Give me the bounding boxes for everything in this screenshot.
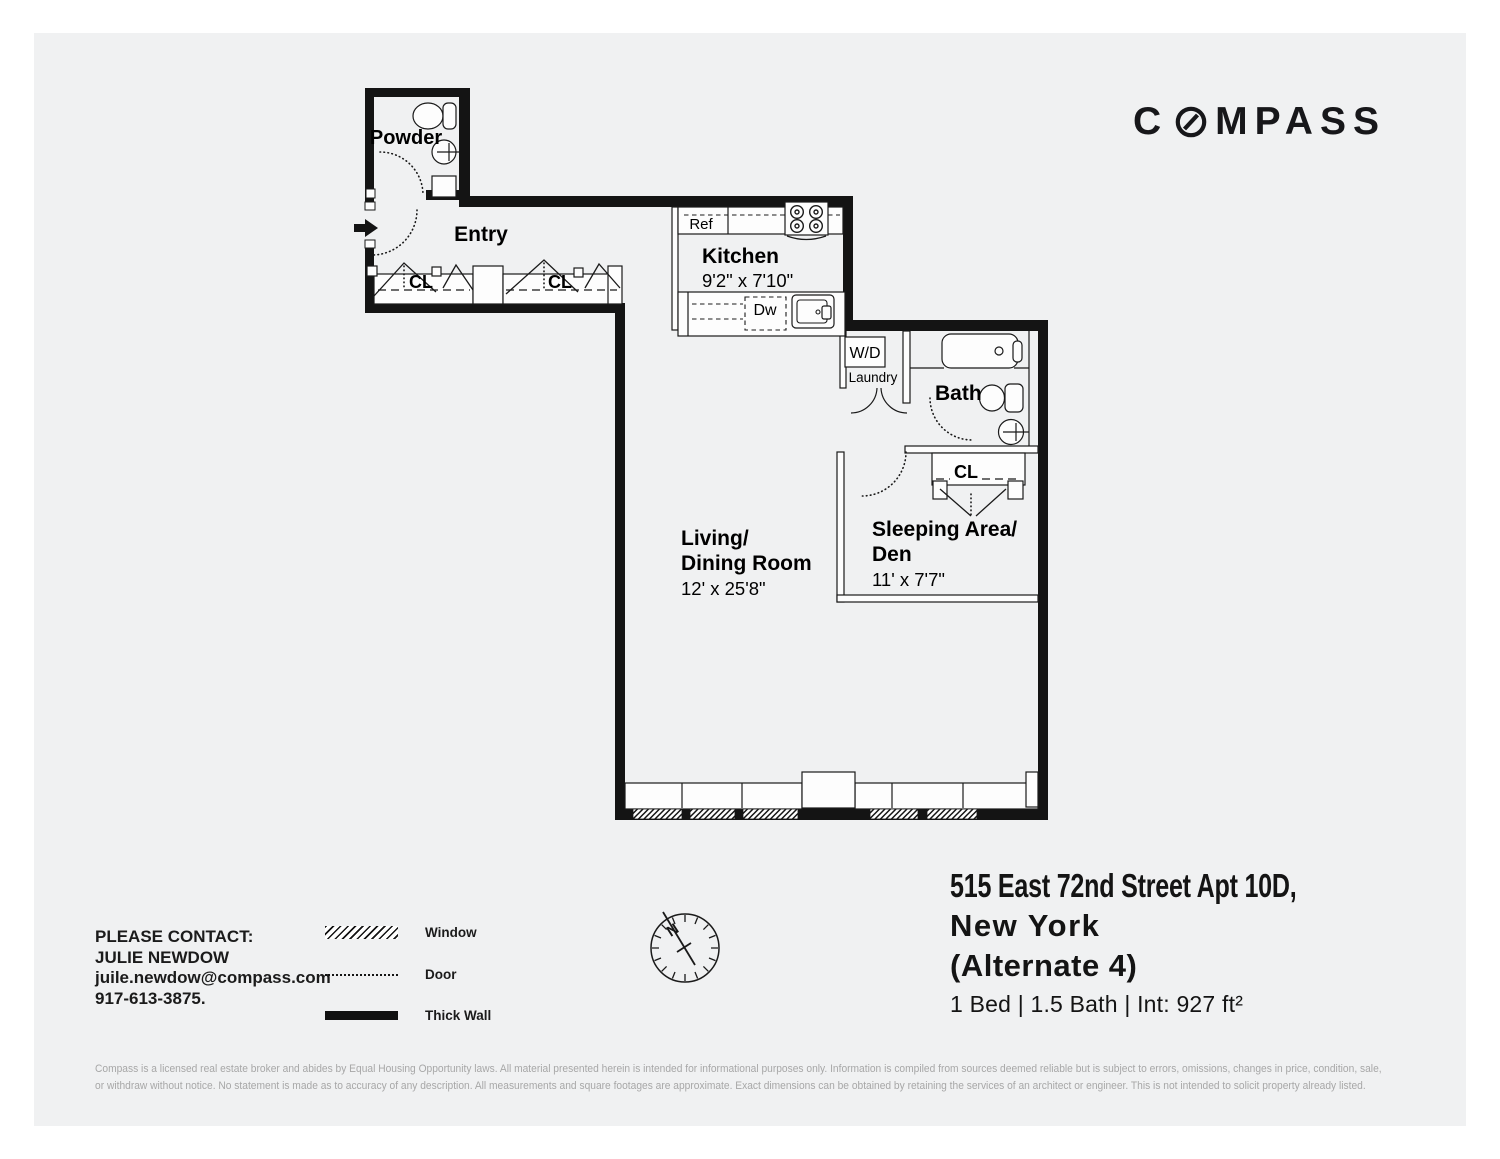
compass-rose: N — [643, 905, 728, 990]
label-closet-3: CL — [954, 462, 978, 482]
legend-row-door: Door — [325, 967, 565, 982]
contact-name: JULIE NEWDOW — [95, 948, 331, 969]
logo-text-mpass: MPASS — [1215, 100, 1386, 144]
powder-fixtures — [413, 103, 460, 197]
label-sleeping-1: Sleeping Area/ — [872, 518, 1017, 541]
contact-heading: PLEASE CONTACT: — [95, 927, 331, 948]
floorplan-drawing: Powder Entry CL CL Ref Kitchen 9'2" x 7'… — [345, 80, 1055, 830]
logo-text-c: C — [1133, 100, 1168, 144]
thick-wall-swatch-icon — [325, 1011, 398, 1020]
label-closet-2: CL — [548, 272, 572, 292]
contact-block: PLEASE CONTACT: JULIE NEWDOW juile.newdo… — [95, 927, 331, 1009]
label-living-dims: 12' x 25'8" — [681, 578, 766, 599]
legend-door-label: Door — [425, 967, 457, 982]
label-dw: Dw — [753, 302, 777, 319]
kitchen-sink — [792, 295, 834, 328]
entry-arrow-icon — [354, 219, 378, 237]
door-swatch-icon — [325, 974, 398, 976]
label-laundry: Laundry — [849, 370, 898, 385]
label-kitchen: Kitchen — [702, 245, 779, 268]
legend-row-thick-wall: Thick Wall — [325, 1008, 565, 1023]
contact-phone: 917-613-3875. — [95, 989, 331, 1010]
disclaimer: Compass is a licensed real estate broker… — [95, 1061, 1465, 1095]
label-sleeping-2: Den — [872, 543, 912, 566]
legend-window-label: Window — [425, 925, 477, 940]
contact-email: juile.newdow@compass.com — [95, 968, 331, 989]
ptac-unit — [802, 772, 855, 808]
disclaimer-line-1: Compass is a licensed real estate broker… — [95, 1061, 1369, 1078]
label-ref: Ref — [689, 216, 713, 233]
disclaimer-line-2: or withdraw without notice. No statement… — [95, 1078, 1369, 1095]
north-needle — [663, 912, 695, 965]
window-swatch-icon — [325, 926, 398, 939]
entry-closets — [367, 260, 622, 304]
label-kitchen-dims: 9'2" x 7'10" — [702, 270, 793, 291]
label-bath: Bath — [935, 382, 982, 405]
powder-toilet — [413, 103, 443, 129]
toilet — [980, 385, 1005, 411]
door-jambs — [365, 189, 375, 248]
listing-specs: 1 Bed | 1.5 Bath | Int: 927 ft² — [950, 991, 1470, 1018]
address-line-2: New York — [950, 906, 1470, 946]
legend-row-window: Window — [325, 925, 565, 940]
address-line-3: (Alternate 4) — [950, 946, 1470, 986]
compass-o-icon — [1174, 105, 1208, 139]
legend: Window Door Thick Wall — [325, 922, 565, 1023]
label-powder: Powder — [370, 127, 442, 149]
floorplan-sheet: C MPASS — [0, 0, 1500, 1159]
label-living-2: Dining Room — [681, 552, 812, 575]
label-closet-1: CL — [409, 272, 433, 292]
label-living-1: Living/ — [681, 527, 749, 550]
window-sills — [625, 772, 1038, 809]
label-entry: Entry — [454, 223, 508, 246]
label-wd: W/D — [849, 345, 880, 362]
bathtub — [942, 334, 1018, 368]
legend-thick-wall-label: Thick Wall — [425, 1008, 491, 1023]
address-line-1: 515 East 72nd Street Apt 10D, — [950, 866, 1345, 906]
compass-logo: C MPASS — [1133, 100, 1386, 144]
listing-info: 515 East 72nd Street Apt 10D, New York (… — [950, 866, 1470, 1018]
bedroom-closet — [932, 453, 1025, 516]
label-sleeping-dims: 11' x 7'7" — [872, 569, 945, 590]
